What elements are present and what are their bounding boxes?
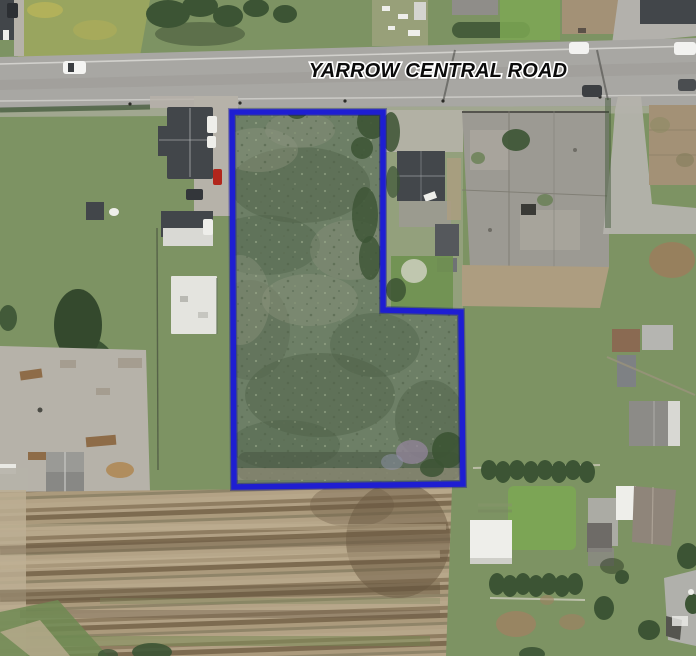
car-on-road — [582, 85, 602, 97]
road-label: YARROW CENTRAL ROAD — [309, 60, 568, 82]
flowering-tree — [401, 259, 427, 283]
tank — [109, 208, 119, 216]
sign-post — [3, 30, 9, 40]
hedge-line — [605, 98, 611, 228]
parked-truck — [203, 219, 213, 235]
parked-car — [207, 136, 216, 148]
foundation-hole — [521, 204, 536, 215]
dirt-patch — [540, 595, 554, 605]
shed-roof — [642, 325, 673, 350]
aerial-photo: YARROW CENTRAL ROAD — [0, 0, 696, 656]
building-roof — [452, 0, 498, 15]
truck-on-road — [674, 42, 696, 55]
hedge-tree — [565, 460, 581, 480]
fence-line — [157, 228, 158, 470]
tree — [615, 570, 629, 584]
parked-car — [186, 189, 203, 200]
tree — [359, 236, 381, 280]
dirt-patch — [649, 242, 695, 278]
dandelion-patch — [27, 2, 63, 18]
hedge-tree — [523, 461, 539, 483]
weedy-row — [100, 598, 440, 604]
tree — [594, 596, 614, 620]
lumber-pile — [28, 452, 46, 460]
parked-car — [688, 589, 694, 595]
house-roof — [562, 0, 620, 34]
moss-patch — [676, 153, 694, 167]
hedge-tree — [567, 573, 583, 595]
trailer — [414, 2, 426, 20]
patio — [399, 201, 451, 227]
white-garage-roof — [470, 520, 512, 564]
utility-pole — [128, 102, 131, 105]
hedge-tree — [537, 460, 553, 480]
tree — [213, 5, 243, 27]
shed-roof — [435, 224, 459, 256]
weed-tuft — [471, 152, 485, 164]
roof-edge — [470, 558, 512, 564]
tree — [351, 137, 373, 159]
rubble — [488, 228, 492, 232]
utility-pole — [238, 101, 241, 104]
lawn — [508, 486, 576, 550]
hedge-tree — [579, 461, 595, 483]
roadside-hedge — [0, 107, 150, 110]
dirt-patch — [559, 614, 585, 630]
east-foundation-lot — [462, 111, 609, 308]
yard-object — [96, 388, 110, 395]
furrow-row — [20, 610, 440, 618]
east-driveway-and-barn — [603, 96, 696, 234]
plowed-field — [0, 468, 452, 656]
notch-excluded-area — [382, 110, 463, 314]
parked-car — [7, 3, 18, 18]
shed-roof — [587, 523, 612, 552]
yard-object — [118, 358, 142, 368]
red-car — [213, 169, 222, 185]
tree — [502, 129, 530, 151]
house-wing — [158, 126, 176, 156]
utility-pole — [343, 99, 346, 102]
roof-vent — [180, 296, 188, 302]
hedge-tree — [551, 461, 567, 483]
car-on-road — [63, 61, 86, 74]
tree — [386, 278, 406, 302]
yard-object — [382, 6, 390, 11]
dirt-pile — [106, 462, 134, 478]
mobile-home-roof — [171, 276, 217, 334]
hedge-tree — [509, 460, 525, 480]
tree — [638, 620, 660, 640]
rubble-strip — [447, 158, 461, 220]
parked-van — [207, 116, 217, 133]
shed-roof — [612, 329, 640, 352]
shed-roof — [86, 202, 104, 220]
furrow-row — [0, 524, 446, 530]
utility-pole — [441, 99, 444, 102]
roof-vent — [198, 312, 208, 318]
flowering-shrub — [381, 454, 403, 470]
yard-object — [398, 14, 408, 19]
tree — [420, 459, 444, 477]
car-on-road — [569, 42, 589, 54]
dirt-strip — [462, 265, 609, 308]
car-on-road — [678, 79, 696, 91]
yard-object — [60, 360, 76, 368]
barn-roof — [649, 105, 696, 185]
house-roof — [632, 486, 676, 546]
porch — [578, 28, 586, 33]
yard-object — [408, 30, 420, 36]
rubble — [573, 148, 577, 152]
dandelion-patch — [73, 20, 117, 40]
hedge-tree — [481, 460, 497, 480]
moss-patch — [650, 117, 670, 133]
hedge-tree — [495, 461, 511, 483]
yard-object — [38, 408, 43, 413]
car-windshield — [68, 63, 74, 72]
house-roof-light — [668, 401, 680, 446]
shed-roof — [617, 355, 636, 387]
driveway — [150, 96, 200, 108]
tree — [352, 187, 378, 243]
dirt-patch — [496, 611, 536, 637]
slab-patch — [520, 210, 580, 250]
building-roof — [640, 0, 696, 24]
weed-tuft — [537, 194, 553, 206]
tree — [386, 166, 400, 198]
tree — [273, 5, 297, 23]
lawn — [500, 0, 560, 40]
yard-object — [388, 26, 395, 30]
wall-face — [672, 616, 688, 626]
